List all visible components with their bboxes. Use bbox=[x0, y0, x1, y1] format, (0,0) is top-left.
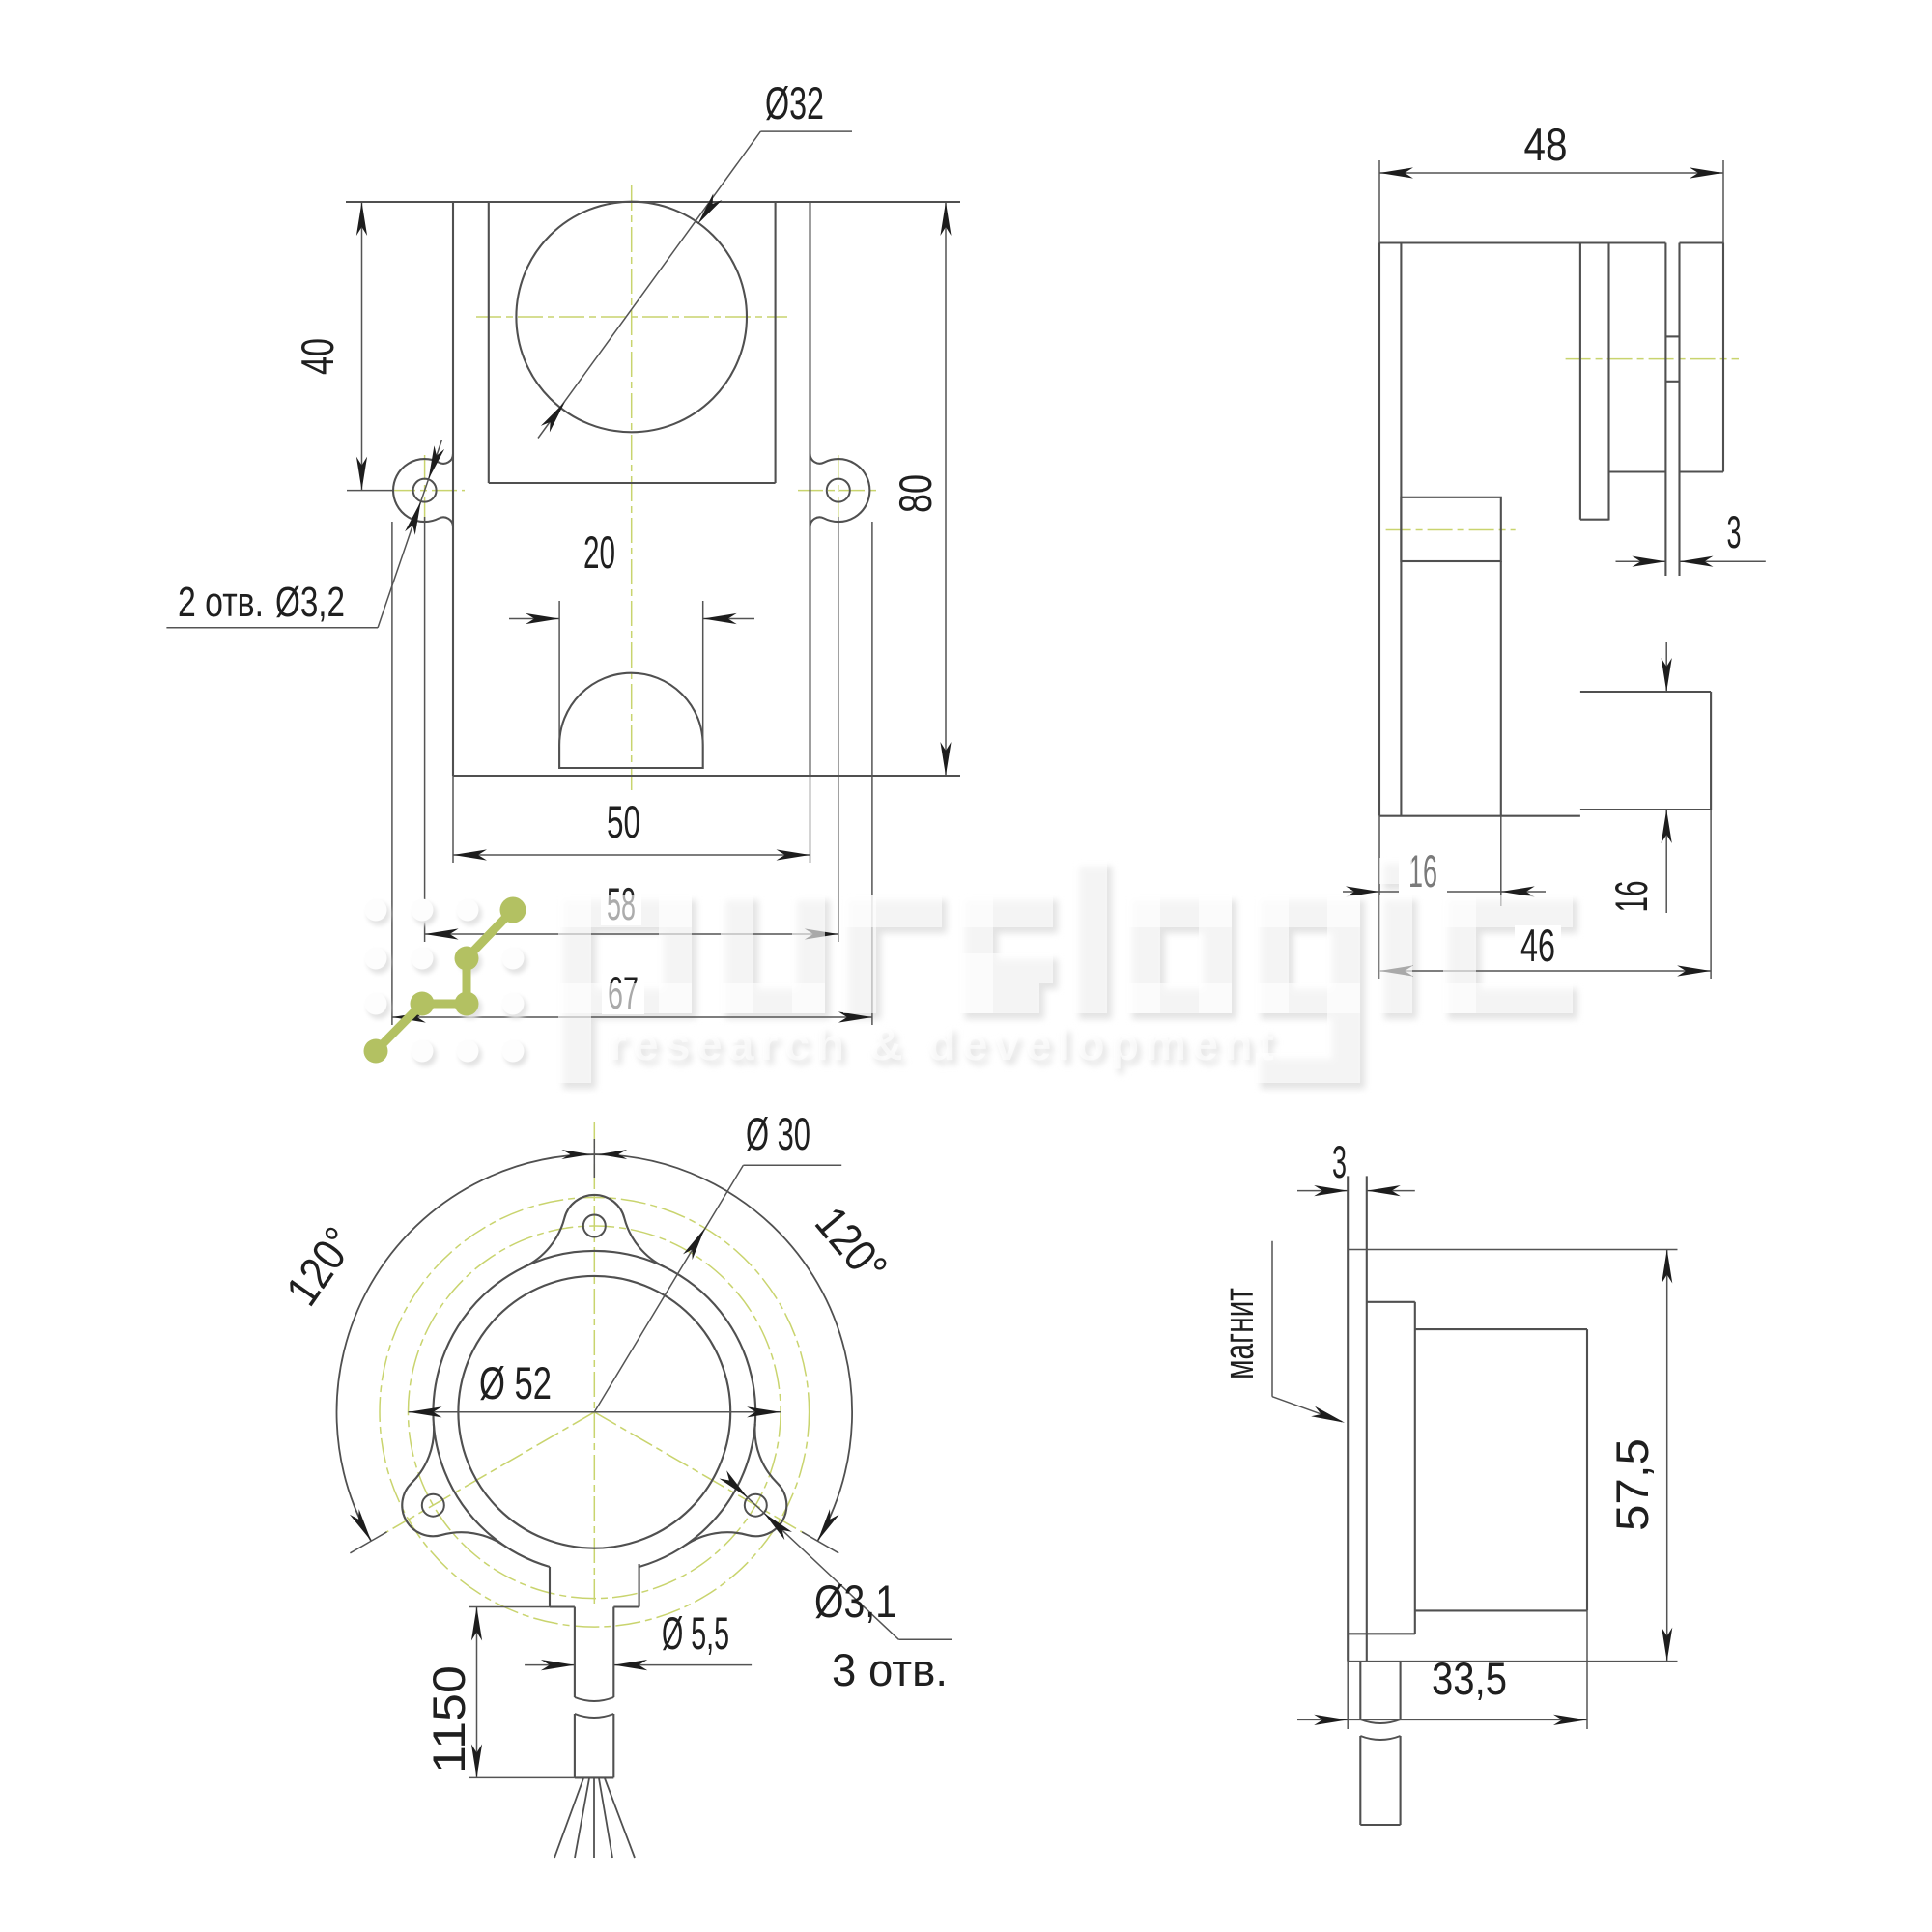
svg-text:50: 50 bbox=[607, 796, 640, 847]
svg-text:20: 20 bbox=[583, 526, 615, 578]
svg-text:2 отв.: 2 отв. bbox=[178, 579, 264, 626]
svg-text:16: 16 bbox=[1605, 881, 1657, 913]
svg-text:1150: 1150 bbox=[423, 1665, 474, 1774]
svg-text:3: 3 bbox=[1332, 1136, 1347, 1187]
svg-text:80: 80 bbox=[890, 474, 941, 513]
svg-text:Ø 5,5: Ø 5,5 bbox=[662, 1607, 729, 1659]
svg-text:Ø3,2: Ø3,2 bbox=[275, 579, 345, 626]
svg-text:Ø3,1: Ø3,1 bbox=[814, 1576, 896, 1627]
svg-text:3 отв.: 3 отв. bbox=[832, 1644, 948, 1695]
svg-text:Ø 30: Ø 30 bbox=[746, 1108, 810, 1159]
svg-text:48: 48 bbox=[1524, 119, 1568, 170]
svg-text:40: 40 bbox=[292, 338, 343, 375]
svg-text:Ø32: Ø32 bbox=[765, 77, 824, 128]
svg-text:3: 3 bbox=[1727, 506, 1742, 557]
svg-text:Ø 52: Ø 52 bbox=[479, 1357, 552, 1408]
svg-text:16: 16 bbox=[1408, 845, 1437, 896]
svg-text:research & development: research & development bbox=[609, 1019, 1280, 1069]
svg-text:33,5: 33,5 bbox=[1432, 1653, 1507, 1704]
svg-text:57,5: 57,5 bbox=[1606, 1438, 1658, 1531]
svg-text:магнит: магнит bbox=[1215, 1288, 1263, 1379]
